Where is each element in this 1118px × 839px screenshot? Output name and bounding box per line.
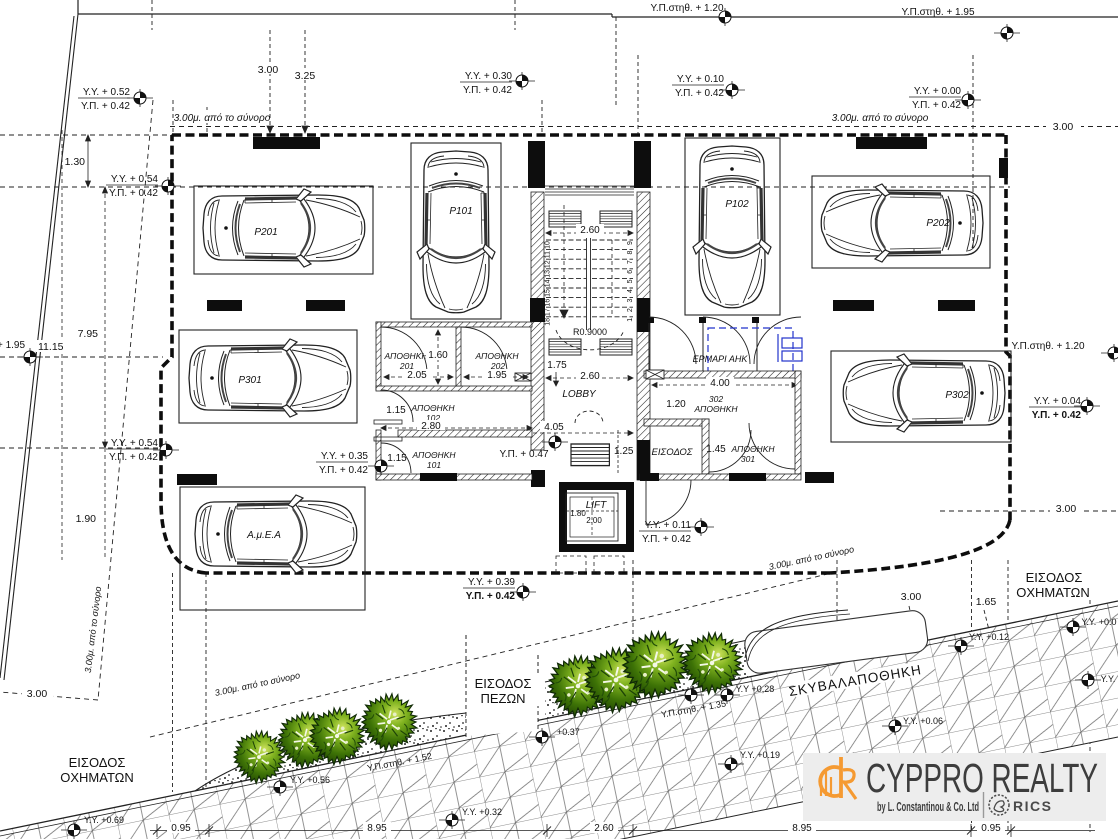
svg-text:Y.Y. + 0.11: Y.Y. + 0.11 — [645, 520, 692, 531]
svg-text:1.90: 1.90 — [76, 513, 97, 525]
svg-text:ΑΠΟΘΗΚΗ: ΑΠΟΘΗΚΗ — [412, 450, 457, 460]
svg-text:3: 3 — [627, 299, 634, 303]
svg-text:Υ.Π. + 0.42: Υ.Π. + 0.42 — [642, 534, 691, 545]
svg-text:Y.Y. + 0.54: Y.Y. + 0.54 — [111, 174, 159, 185]
svg-text:LIFT: LIFT — [586, 500, 607, 511]
svg-text:+0.37: +0.37 — [557, 727, 580, 737]
svg-text:301: 301 — [741, 454, 755, 464]
svg-text:2.80: 2.80 — [421, 421, 441, 432]
svg-text:Υ.Π.στηθ. + 1.20: Υ.Π.στηθ. + 1.20 — [1011, 341, 1084, 352]
svg-text:Y.Y. +0.56: Y.Y. +0.56 — [290, 775, 330, 785]
svg-text:Y.Y +0,28: Y.Y +0,28 — [736, 684, 774, 694]
svg-text:Y.Y.: Y.Y. — [1101, 674, 1116, 684]
svg-text:1.80: 1.80 — [570, 509, 586, 518]
svg-text:16: 16 — [545, 299, 552, 307]
svg-text:ΟΧΗΜΑΤΩΝ: ΟΧΗΜΑΤΩΝ — [1016, 585, 1090, 600]
svg-text:P102: P102 — [725, 199, 749, 210]
svg-text:1.30: 1.30 — [65, 156, 86, 168]
svg-text:0.95: 0.95 — [171, 823, 191, 834]
svg-text:12: 12 — [545, 260, 552, 268]
svg-text:LOBBY: LOBBY — [562, 389, 597, 400]
svg-text:8.95: 8.95 — [792, 823, 812, 834]
svg-text:1.20: 1.20 — [666, 399, 686, 410]
svg-text:ΟΧΗΜΑΤΩΝ: ΟΧΗΜΑΤΩΝ — [60, 770, 134, 785]
svg-text:3.25: 3.25 — [295, 70, 316, 82]
svg-text:ΠΕΖΩΝ: ΠΕΖΩΝ — [480, 691, 525, 706]
svg-text:+ 1.95: + 1.95 — [0, 340, 25, 351]
svg-text:3.00μ. από το σύνορο: 3.00μ. από το σύνορο — [83, 586, 104, 673]
svg-text:Y.Y. + 0.10: Y.Y. + 0.10 — [677, 74, 725, 85]
svg-text:1.95: 1.95 — [487, 370, 507, 381]
svg-text:3.00μ. από το σύνορο: 3.00μ. από το σύνορο — [174, 112, 271, 124]
svg-text:P302: P302 — [945, 390, 969, 401]
svg-text:101: 101 — [427, 460, 441, 470]
svg-text:10: 10 — [545, 241, 552, 249]
svg-text:2.60: 2.60 — [580, 225, 600, 236]
svg-text:18: 18 — [545, 318, 552, 326]
svg-text:4: 4 — [627, 289, 634, 293]
svg-text:11: 11 — [545, 251, 552, 258]
svg-text:13: 13 — [545, 270, 552, 278]
svg-text:ΑΠΟΘΗΚΗ: ΑΠΟΘΗΚΗ — [731, 444, 776, 454]
svg-text:Υ.Π. + 0.42: Υ.Π. + 0.42 — [81, 101, 130, 112]
svg-text:Y.Y. +0.12: Y.Y. +0.12 — [969, 632, 1009, 642]
svg-text:ΕΙΣΟΔΟΣ: ΕΙΣΟΔΟΣ — [69, 755, 126, 770]
svg-text:Υ.Π.στηθ. + 1.95: Υ.Π.στηθ. + 1.95 — [901, 7, 974, 18]
svg-text:17: 17 — [545, 308, 552, 316]
svg-text:Y.Y. + 0.35: Y.Y. + 0.35 — [321, 451, 369, 462]
svg-text:9: 9 — [627, 241, 634, 245]
svg-text:1.15: 1.15 — [387, 453, 407, 464]
svg-text:Υ.Π.στηθ. + 1.20: Υ.Π.στηθ. + 1.20 — [650, 3, 723, 14]
svg-text:11.15: 11.15 — [38, 341, 64, 353]
svg-text:P201: P201 — [254, 227, 277, 238]
svg-text:8.95: 8.95 — [367, 823, 387, 834]
svg-text:1: 1 — [627, 318, 634, 322]
svg-text:Y.Y. + 0.30: Y.Y. + 0.30 — [465, 71, 513, 82]
svg-text:P202: P202 — [926, 218, 950, 229]
svg-text:3.00: 3.00 — [27, 688, 48, 700]
svg-text:P101: P101 — [449, 206, 472, 217]
svg-text:6: 6 — [627, 270, 634, 274]
svg-text:4.05: 4.05 — [544, 422, 564, 433]
svg-text:1.60: 1.60 — [428, 350, 448, 361]
svg-text:Y.Y. +0.32: Y.Y. +0.32 — [462, 807, 502, 817]
svg-text:3.00μ. από το σύνορο: 3.00μ. από το σύνορο — [832, 112, 929, 124]
svg-text:7: 7 — [627, 260, 634, 264]
svg-text:Y.Y. +0.06: Y.Y. +0.06 — [903, 716, 943, 726]
svg-text:0.95: 0.95 — [981, 823, 1001, 834]
svg-text:Y.Y. +0.69: Y.Y. +0.69 — [84, 815, 124, 825]
svg-text:5: 5 — [627, 279, 634, 283]
svg-text:2.60: 2.60 — [594, 823, 614, 834]
svg-text:3.00: 3.00 — [901, 591, 922, 603]
svg-text:1.75: 1.75 — [547, 360, 567, 371]
svg-text:1.15: 1.15 — [386, 405, 406, 416]
svg-text:2: 2 — [627, 308, 634, 312]
svg-text:Α.μ.Ε.Α: Α.μ.Ε.Α — [246, 530, 281, 541]
svg-text:Υ.Π. + 0.42: Υ.Π. + 0.42 — [319, 465, 368, 476]
svg-text:Υ.Π. + 0.42: Υ.Π. + 0.42 — [675, 88, 724, 99]
svg-text:2.60: 2.60 — [580, 371, 600, 382]
svg-text:Υ.Π. + 0.42: Υ.Π. + 0.42 — [1032, 410, 1082, 421]
svg-text:14: 14 — [545, 279, 552, 287]
svg-text:3.00μ. από το σύνορο: 3.00μ. από το σύνορο — [214, 670, 301, 698]
svg-text:3.00: 3.00 — [1056, 503, 1077, 515]
svg-text:1.45: 1.45 — [706, 444, 726, 455]
svg-text:Υ.Π. + 0.42: Υ.Π. + 0.42 — [109, 188, 158, 199]
svg-text:15: 15 — [545, 289, 552, 297]
svg-text:Y.Y. +0.0: Y.Y. +0.0 — [1082, 617, 1117, 627]
svg-text:Y.Y. +0.19: Y.Y. +0.19 — [740, 750, 780, 760]
svg-text:Y.Y. + 0.54: Y.Y. + 0.54 — [111, 438, 159, 449]
svg-text:ΕΡΜΑΡΙ ΑΗΚ: ΕΡΜΑΡΙ ΑΗΚ — [693, 354, 749, 364]
svg-text:ΕΙΣΟΔΟΣ: ΕΙΣΟΔΟΣ — [652, 447, 693, 458]
svg-text:Y.Y. + 0.04: Y.Y. + 0.04 — [1034, 396, 1082, 407]
svg-text:Y.Y. + 0.00: Y.Y. + 0.00 — [914, 86, 962, 97]
svg-text:2.00: 2.00 — [586, 516, 602, 525]
svg-text:ΑΠΟΘΗΚΗ: ΑΠΟΘΗΚΗ — [475, 351, 520, 361]
svg-text:2.05: 2.05 — [407, 370, 427, 381]
svg-text:Υ.Π. + 0.42: Υ.Π. + 0.42 — [912, 100, 961, 111]
svg-text:Υ.Π. + 0.42: Υ.Π. + 0.42 — [109, 452, 158, 463]
svg-text:ΑΠΟΘΗΚΗ: ΑΠΟΘΗΚΗ — [694, 404, 739, 414]
svg-text:ΕΙΣΟΔΟΣ: ΕΙΣΟΔΟΣ — [1026, 570, 1083, 585]
svg-text:ΑΠΟΘΗΚΗ: ΑΠΟΘΗΚΗ — [384, 351, 429, 361]
svg-text:8: 8 — [627, 251, 634, 255]
svg-text:Υ.Π. + 0.42: Υ.Π. + 0.42 — [466, 591, 516, 602]
svg-text:Y.Y. + 0.39: Y.Y. + 0.39 — [468, 577, 516, 588]
svg-text:1.25: 1.25 — [614, 446, 634, 457]
svg-text:Υ.Π. + 0.47: Υ.Π. + 0.47 — [499, 449, 548, 460]
svg-text:3.00: 3.00 — [1053, 121, 1074, 133]
svg-text:RICS: RICS — [1013, 798, 1052, 814]
svg-text:P301: P301 — [238, 375, 261, 386]
svg-text:7.95: 7.95 — [78, 328, 99, 340]
svg-text:R0.9000: R0.9000 — [573, 327, 607, 337]
svg-text:ΕΙΣΟΔΟΣ: ΕΙΣΟΔΟΣ — [475, 676, 532, 691]
svg-text:ΑΠΟΘΗΚΗ: ΑΠΟΘΗΚΗ — [411, 403, 456, 413]
svg-text:CYPPRO REALTY: CYPPRO REALTY — [866, 755, 1098, 801]
svg-text:3.00μ. από το σύνορο: 3.00μ. από το σύνορο — [768, 544, 855, 572]
svg-text:3.00: 3.00 — [258, 64, 279, 76]
svg-text:1.65: 1.65 — [976, 596, 997, 608]
svg-text:302: 302 — [709, 394, 723, 404]
svg-text:by L. Constantinou & Co. Ltd: by L. Constantinou & Co. Ltd — [877, 799, 979, 814]
svg-text:4.00: 4.00 — [710, 378, 730, 389]
svg-text:Y.Y. + 0.52: Y.Y. + 0.52 — [83, 87, 131, 98]
svg-text:Υ.Π. + 0.42: Υ.Π. + 0.42 — [463, 85, 512, 96]
